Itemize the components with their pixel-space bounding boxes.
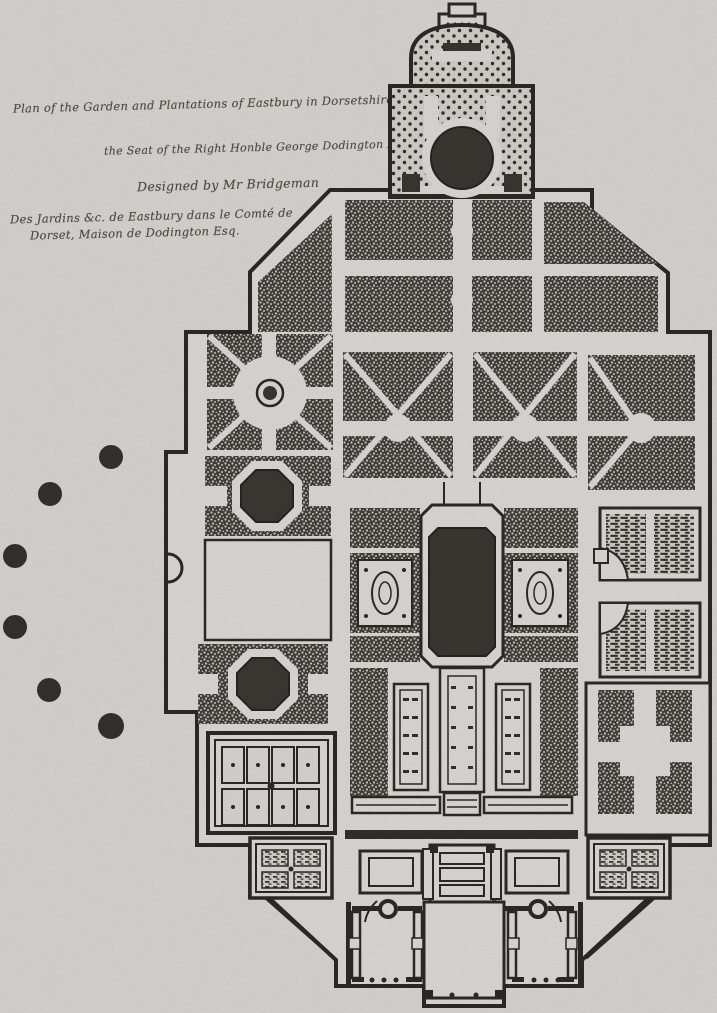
tree-clump (37, 678, 61, 702)
north-axis-group (390, 4, 533, 198)
central-forecourt (424, 902, 504, 999)
central-gate-stairs (423, 845, 501, 905)
door-mark (508, 938, 519, 949)
small-basin (263, 386, 277, 400)
dome-dark-bar (443, 43, 481, 51)
door-mark (566, 938, 577, 949)
horseshoe-walk-right (486, 96, 500, 138)
tree-clump (3, 544, 27, 568)
quarter-clearing (384, 414, 412, 442)
circle-clearing-quarter (207, 334, 333, 450)
quarter-clearing (626, 413, 656, 443)
kitchen-garden (208, 733, 335, 833)
court-corner-block-left (402, 174, 420, 192)
horseshoe-walk-left (424, 96, 438, 138)
mount (241, 470, 293, 522)
corner-parterre-west (250, 838, 332, 898)
central-axis-group (345, 482, 578, 839)
southeast-quarter-blocks (586, 683, 710, 835)
tree-clump (3, 615, 27, 639)
octagon-mount-north (205, 456, 331, 536)
round-pier-west (380, 901, 396, 917)
west-gate-halfround (168, 554, 182, 582)
door-mark (412, 938, 423, 949)
walk-bulge (451, 289, 473, 311)
fruit-garden-north (594, 508, 700, 580)
octagon-mount-south (198, 644, 328, 724)
garden-plan-drawing (0, 0, 717, 1013)
walk-bulge (451, 220, 473, 242)
circular-mount-pond (431, 127, 493, 189)
round-pier-east (530, 901, 546, 917)
mount (237, 658, 289, 710)
dome-terrace (432, 50, 492, 61)
court-corner-block-right (504, 174, 522, 192)
door-mark (349, 938, 360, 949)
tree-clump (38, 482, 62, 506)
quarter-clearing (511, 414, 539, 442)
great-basin-water (429, 528, 495, 656)
terrace-wall (345, 830, 578, 839)
tree-clump (99, 445, 123, 469)
corner-parterre-east (588, 838, 670, 898)
walk-crossing (449, 255, 475, 281)
tree-clump (98, 713, 124, 739)
south-walk-parterres (394, 668, 530, 792)
temple-building (449, 4, 475, 16)
garden-pavilion (594, 549, 608, 563)
broderie-parterre-east (504, 553, 578, 633)
engraving-page: Plan of the Garden and Plantations of Ea… (0, 0, 717, 1013)
broderie-parterre-west (350, 553, 420, 633)
diagonal-walk-quarters (343, 352, 695, 490)
avenue-tree-clumps (3, 445, 124, 739)
east-column-group (586, 508, 710, 835)
bowling-green (205, 540, 331, 640)
fruit-garden-south (600, 603, 700, 677)
